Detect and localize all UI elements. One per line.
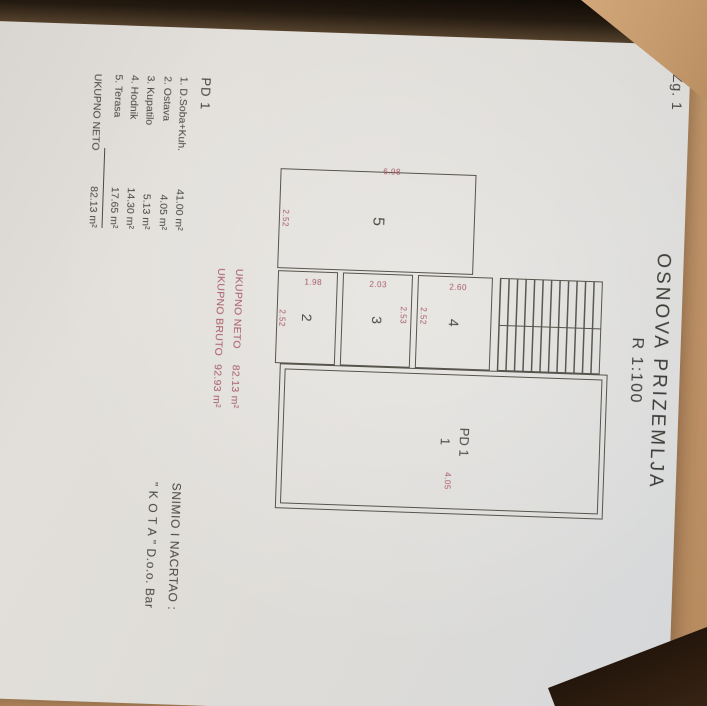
staircase bbox=[497, 278, 603, 375]
legend-room-name: 2. Ostava bbox=[158, 76, 176, 121]
dimension-room3-width: 2.03 bbox=[369, 280, 387, 290]
legend-room-name: 1. D.Soba+Kuh. bbox=[173, 76, 192, 151]
legend-room-area: 5.13 m² bbox=[138, 194, 155, 230]
legend-sum-line bbox=[101, 148, 105, 228]
dimension-room1-width: 4.05 bbox=[443, 472, 453, 490]
room-living-kitchen: PD 1 1 bbox=[275, 363, 608, 519]
legend-total-value: 82.13 m² bbox=[86, 186, 99, 228]
dimension-room4-depth: 2.52 bbox=[418, 307, 428, 325]
dimension-room3-depth: 2.53 bbox=[398, 306, 408, 324]
legend-heading: PD 1 bbox=[193, 77, 213, 231]
dimension-terrace-width: 2.52 bbox=[281, 209, 291, 227]
total-neto-value: 82.13 m² bbox=[228, 365, 242, 409]
legend-room-name: 3. Kupatilo bbox=[141, 75, 159, 125]
room-legend: PD 1 1. D.Soba+Kuh. 41.00 m² 2. Ostava 4… bbox=[86, 74, 214, 232]
legend-room-area: 17.65 m² bbox=[105, 187, 123, 229]
legend-total-row: UKUPNO NETO 82.13 m² bbox=[86, 74, 103, 228]
room-terrace-label: 5 bbox=[367, 172, 388, 271]
legend-room-area: 4.05 m² bbox=[154, 194, 171, 230]
room-living-kitchen-label: PD 1 1 bbox=[432, 370, 476, 514]
surveyor-credit: SNIMIO I NACRTAO : " K O T A " D.o.o. Ba… bbox=[134, 481, 187, 673]
total-bruto-row: UKUPNO BRUTO 92.93 m² bbox=[210, 268, 228, 428]
dimension-room4-width: 2.60 bbox=[449, 282, 467, 292]
legend-room-name: 5. Terasa bbox=[109, 74, 127, 118]
legend-room-area: 41.00 m² bbox=[170, 189, 188, 231]
legend-room-area: 14.30 m² bbox=[121, 187, 139, 229]
total-bruto-label: UKUPNO BRUTO bbox=[212, 268, 227, 364]
dimension-terrace-height: 6.98 bbox=[383, 167, 401, 177]
title-block: OSNOVA PRIZEMLJA R 1:100 bbox=[615, 21, 682, 706]
total-neto-label: UKUPNO NETO bbox=[230, 269, 245, 365]
room-terrace: 5 bbox=[277, 168, 476, 275]
area-totals: UKUPNO NETO 82.13 m² UKUPNO BRUTO 92.93 … bbox=[204, 268, 246, 429]
dimension-room2-depth: 2.52 bbox=[277, 309, 287, 327]
floorplan-sheet: Zg. 1 OSNOVA PRIZEMLJA R 1:100 5 4 3 2 bbox=[0, 0, 692, 706]
total-bruto-value: 92.93 m² bbox=[210, 364, 224, 408]
dimension-room2-width: 1.98 bbox=[304, 277, 322, 287]
legend-total-label: UKUPNO NETO bbox=[89, 74, 104, 151]
floor-plan-drawing: 5 4 3 2 PD 1 1 6.98 bbox=[265, 163, 619, 523]
photo-scene: Zg. 1 OSNOVA PRIZEMLJA R 1:100 5 4 3 2 bbox=[0, 0, 707, 706]
total-neto-row: UKUPNO NETO 82.13 m² bbox=[228, 269, 246, 429]
legend-room-name: 4. Hodnik bbox=[125, 75, 143, 120]
